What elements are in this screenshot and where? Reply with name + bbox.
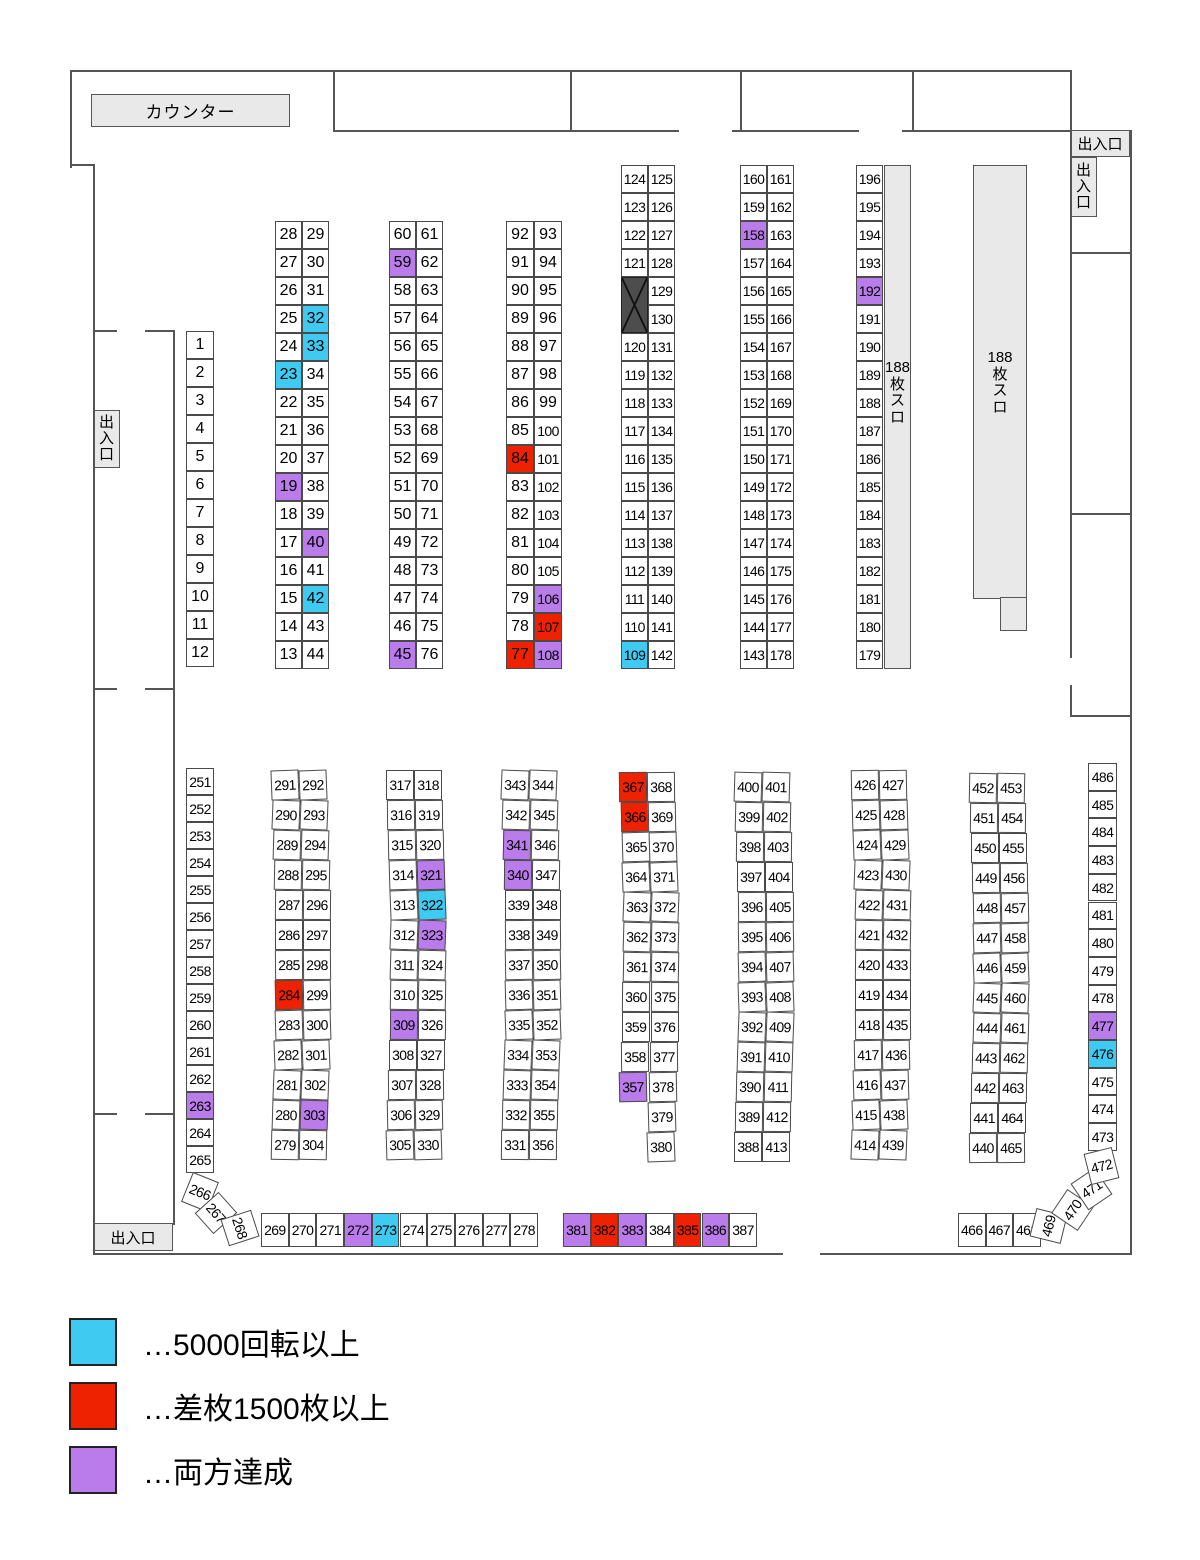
seat-154: 154 xyxy=(740,333,767,361)
seat-57: 57 xyxy=(389,305,416,333)
seat-166: 166 xyxy=(767,305,794,333)
seat-465: 465 xyxy=(997,1133,1025,1163)
seat-61: 61 xyxy=(416,221,443,249)
seat-311: 311 xyxy=(390,950,419,981)
seat-100: 100 xyxy=(534,417,562,445)
seat-404: 404 xyxy=(765,862,793,892)
seat-171: 171 xyxy=(767,445,794,473)
seat-349: 349 xyxy=(533,920,561,950)
seat-415: 415 xyxy=(852,1099,881,1130)
seat-464: 464 xyxy=(998,1103,1026,1133)
seat-6: 6 xyxy=(186,471,214,499)
seat-129: 129 xyxy=(648,277,675,305)
seat-458: 458 xyxy=(1000,923,1029,954)
seat-257: 257 xyxy=(186,930,214,957)
seat-273: 273 xyxy=(372,1213,400,1247)
seat-174: 174 xyxy=(767,529,794,557)
seat-285: 285 xyxy=(275,950,303,980)
seat-36: 36 xyxy=(302,417,329,445)
seat-95: 95 xyxy=(534,277,562,305)
seat-32: 32 xyxy=(302,305,329,333)
seat-162: 162 xyxy=(767,193,794,221)
seat-375: 375 xyxy=(651,982,679,1012)
seat-324: 324 xyxy=(418,950,447,981)
seat-319: 319 xyxy=(415,800,443,830)
seat-47: 47 xyxy=(389,585,416,613)
seat-80: 80 xyxy=(506,557,534,585)
seat-269: 269 xyxy=(261,1213,289,1247)
seat-402: 402 xyxy=(763,802,792,833)
seat-328: 328 xyxy=(416,1070,444,1100)
seat-42: 42 xyxy=(302,585,329,613)
seat-428: 428 xyxy=(880,800,909,831)
seat-94: 94 xyxy=(534,249,562,277)
seat-317: 317 xyxy=(386,770,414,800)
wall-segment xyxy=(70,70,72,168)
seat-53: 53 xyxy=(389,417,416,445)
seat-376: 376 xyxy=(651,1012,679,1042)
seat-424: 424 xyxy=(853,829,882,860)
seat-33: 33 xyxy=(302,333,329,361)
seat-354: 354 xyxy=(531,1070,560,1101)
seat-187: 187 xyxy=(856,417,883,445)
seat-120: 120 xyxy=(621,333,648,361)
seat-49: 49 xyxy=(389,529,416,557)
legend-label-red: …差枚1500枚以上 xyxy=(143,1384,390,1428)
seat-460: 460 xyxy=(1000,982,1029,1013)
seat-263: 263 xyxy=(186,1092,214,1119)
seat-86: 86 xyxy=(506,389,534,417)
seat-388: 388 xyxy=(734,1132,762,1162)
seat-175: 175 xyxy=(767,557,794,585)
slot-strip-inner-label: 188枚スロ xyxy=(884,360,911,426)
seat-190: 190 xyxy=(856,333,883,361)
seat-189: 189 xyxy=(856,361,883,389)
seat-420: 420 xyxy=(855,950,883,980)
seat-360: 360 xyxy=(622,982,650,1012)
seat-362: 362 xyxy=(623,922,652,953)
floor-map: カウンター 出入口 出入口 出入口 出入口 188枚スロ 188枚スロ …500… xyxy=(0,0,1200,1560)
seat-195: 195 xyxy=(856,193,883,221)
seat-98: 98 xyxy=(534,361,562,389)
seat-398: 398 xyxy=(736,832,764,862)
wall-segment xyxy=(570,70,572,132)
seat-31: 31 xyxy=(302,277,329,305)
seat-115: 115 xyxy=(621,473,648,501)
seat-485: 485 xyxy=(1088,791,1117,819)
seat-184: 184 xyxy=(856,501,883,529)
seat-481: 481 xyxy=(1088,902,1117,930)
seat-71: 71 xyxy=(416,501,443,529)
seat-256: 256 xyxy=(186,903,214,930)
wall-segment xyxy=(1070,252,1132,254)
seat-448: 448 xyxy=(972,893,1001,924)
seat-259: 259 xyxy=(186,984,214,1011)
seat-30: 30 xyxy=(302,249,329,277)
seat-188: 188 xyxy=(856,389,883,417)
seat-450: 450 xyxy=(971,833,999,863)
seat-85: 85 xyxy=(506,417,534,445)
counter-box: カウンター xyxy=(91,94,290,127)
seat-372: 372 xyxy=(650,891,679,922)
seat-73: 73 xyxy=(416,557,443,585)
seat-28: 28 xyxy=(275,221,302,249)
seat-144: 144 xyxy=(740,613,767,641)
seat-4: 4 xyxy=(186,415,214,443)
seat-387: 387 xyxy=(729,1213,757,1247)
seat-374: 374 xyxy=(651,952,680,983)
seat-286: 286 xyxy=(275,920,303,950)
seat-138: 138 xyxy=(648,529,675,557)
seat-392: 392 xyxy=(737,1011,766,1042)
seat-418: 418 xyxy=(854,1010,882,1040)
seat-312: 312 xyxy=(389,919,418,950)
seat-279: 279 xyxy=(271,1130,300,1161)
seat-5: 5 xyxy=(186,443,214,471)
seat-128: 128 xyxy=(648,249,675,277)
seat-24: 24 xyxy=(275,333,302,361)
wall-segment xyxy=(912,70,914,132)
seat-292: 292 xyxy=(299,769,328,800)
seat-11: 11 xyxy=(186,611,214,639)
seat-484: 484 xyxy=(1088,818,1117,846)
seat-69: 69 xyxy=(416,445,443,473)
seat-92: 92 xyxy=(506,221,534,249)
seat-394: 394 xyxy=(738,952,767,983)
seat-135: 135 xyxy=(648,445,675,473)
seat-102: 102 xyxy=(534,473,562,501)
seat-1: 1 xyxy=(186,331,214,359)
seat-82: 82 xyxy=(506,501,534,529)
legend-item-purple: …両方達成 xyxy=(69,1446,293,1494)
seat-91: 91 xyxy=(506,249,534,277)
seat-441: 441 xyxy=(970,1103,998,1133)
wall-segment xyxy=(1070,513,1132,515)
seat-172: 172 xyxy=(767,473,794,501)
seat-251: 251 xyxy=(186,768,214,795)
seat-155: 155 xyxy=(740,305,767,333)
seat-116: 116 xyxy=(621,445,648,473)
seat-431: 431 xyxy=(882,890,911,921)
seat-291: 291 xyxy=(271,769,300,800)
seat-476: 476 xyxy=(1088,1040,1117,1068)
slot-strip-right-label: 188枚スロ xyxy=(973,350,1027,416)
seat-305: 305 xyxy=(386,1130,415,1161)
seat-50: 50 xyxy=(389,501,416,529)
seat-160: 160 xyxy=(740,165,767,193)
seat-290: 290 xyxy=(272,799,301,830)
wall-segment xyxy=(820,1253,1132,1255)
seat-132: 132 xyxy=(648,361,675,389)
seat-35: 35 xyxy=(302,389,329,417)
seat-439: 439 xyxy=(879,1129,908,1160)
seat-278: 278 xyxy=(510,1213,538,1247)
seat-342: 342 xyxy=(502,800,531,831)
seat-173: 173 xyxy=(767,501,794,529)
seat-434: 434 xyxy=(883,980,911,1010)
seat-152: 152 xyxy=(740,389,767,417)
seat-475: 475 xyxy=(1088,1068,1117,1096)
seat-83: 83 xyxy=(506,473,534,501)
seat-433: 433 xyxy=(883,950,911,980)
seat-417: 417 xyxy=(854,1040,883,1071)
seat-252: 252 xyxy=(186,795,214,822)
wall-segment xyxy=(732,130,859,132)
seat-105: 105 xyxy=(534,557,562,585)
seat-147: 147 xyxy=(740,529,767,557)
seat-186: 186 xyxy=(856,445,883,473)
seat-103: 103 xyxy=(534,501,562,529)
entrance-right: 出入口 xyxy=(1070,157,1097,217)
seat-9: 9 xyxy=(186,555,214,583)
seat-358: 358 xyxy=(620,1042,648,1072)
seat-395: 395 xyxy=(738,922,767,953)
seat-479: 479 xyxy=(1088,957,1117,985)
seat-371: 371 xyxy=(649,861,678,892)
seat-142: 142 xyxy=(648,641,675,669)
seat-478: 478 xyxy=(1088,985,1117,1013)
seat-10: 10 xyxy=(186,583,214,611)
seat-382: 382 xyxy=(591,1213,619,1247)
seat-134: 134 xyxy=(648,417,675,445)
seat-66: 66 xyxy=(416,361,443,389)
seat-332: 332 xyxy=(502,1100,531,1131)
seat-193: 193 xyxy=(856,249,883,277)
seat-17: 17 xyxy=(275,529,302,557)
seat-271: 271 xyxy=(316,1213,344,1247)
wall-segment xyxy=(145,688,175,690)
slot-strip-right-foot xyxy=(1000,597,1027,631)
seat-411: 411 xyxy=(764,1072,793,1103)
seat-13: 13 xyxy=(275,641,302,669)
wall-segment xyxy=(902,130,1070,132)
seat-3: 3 xyxy=(186,387,214,415)
seat-405: 405 xyxy=(765,892,793,922)
seat-287: 287 xyxy=(274,890,302,920)
seat-409: 409 xyxy=(765,1011,794,1042)
seat-367: 367 xyxy=(619,772,647,802)
seat-23: 23 xyxy=(275,361,302,389)
seat-406: 406 xyxy=(766,922,795,953)
seat-307: 307 xyxy=(388,1070,416,1100)
seat-401: 401 xyxy=(762,772,791,803)
seat-435: 435 xyxy=(882,1010,910,1040)
seat-121: 121 xyxy=(621,249,648,277)
seat-93: 93 xyxy=(534,221,562,249)
seat-357: 357 xyxy=(619,1072,648,1103)
seat-486: 486 xyxy=(1088,763,1117,791)
legend-swatch-red xyxy=(69,1382,117,1430)
seat-15: 15 xyxy=(275,585,302,613)
seat-97: 97 xyxy=(534,333,562,361)
seat-52: 52 xyxy=(389,445,416,473)
seat-326: 326 xyxy=(417,1010,445,1040)
seat-380: 380 xyxy=(647,1131,676,1162)
seat-143: 143 xyxy=(740,641,767,669)
seat-310: 310 xyxy=(390,980,419,1011)
seat-270: 270 xyxy=(289,1213,317,1247)
seat-320: 320 xyxy=(416,830,445,861)
seat-274: 274 xyxy=(400,1213,428,1247)
seat-407: 407 xyxy=(766,952,795,983)
seat-56: 56 xyxy=(389,333,416,361)
entrance-right-label: 出入口 xyxy=(1076,163,1091,210)
seat-261: 261 xyxy=(186,1038,214,1065)
seat-451: 451 xyxy=(970,803,998,833)
seat-140: 140 xyxy=(648,585,675,613)
seat-378: 378 xyxy=(649,1072,678,1103)
seat-253: 253 xyxy=(186,822,214,849)
seat-125: 125 xyxy=(648,165,675,193)
seat-281: 281 xyxy=(273,1069,302,1100)
seat-75: 75 xyxy=(416,613,443,641)
seat-37: 37 xyxy=(302,445,329,473)
seat-177: 177 xyxy=(767,613,794,641)
seat-459: 459 xyxy=(1000,952,1029,983)
seat-299: 299 xyxy=(303,980,332,1011)
seat-297: 297 xyxy=(303,920,331,950)
seat-316: 316 xyxy=(387,800,415,830)
seat-335: 335 xyxy=(504,1009,533,1040)
seat-157: 157 xyxy=(740,249,767,277)
seat-452: 452 xyxy=(969,773,998,804)
seat-390: 390 xyxy=(736,1072,765,1103)
seat-466: 466 xyxy=(958,1213,986,1247)
seat-74: 74 xyxy=(416,585,443,613)
seat-330: 330 xyxy=(414,1130,443,1161)
seat-2: 2 xyxy=(186,359,214,387)
seat-46: 46 xyxy=(389,613,416,641)
seat-412: 412 xyxy=(763,1102,791,1132)
seat-18: 18 xyxy=(275,501,302,529)
seat-192: 192 xyxy=(856,277,883,305)
seat-449: 449 xyxy=(972,863,1000,893)
seat-462: 462 xyxy=(1000,1043,1029,1074)
seat-196: 196 xyxy=(856,165,883,193)
seat-403: 403 xyxy=(764,832,792,862)
seat-421: 421 xyxy=(855,920,884,951)
seat-344: 344 xyxy=(529,769,558,800)
seat-293: 293 xyxy=(300,799,329,830)
seat-126: 126 xyxy=(648,193,675,221)
seat-106: 106 xyxy=(534,585,562,613)
seat-99: 99 xyxy=(534,389,562,417)
seat-59: 59 xyxy=(389,249,416,277)
seat-294: 294 xyxy=(301,830,330,861)
seat-309: 309 xyxy=(389,1010,417,1040)
entrance-top-right: 出入口 xyxy=(1070,130,1130,157)
seat-391: 391 xyxy=(736,1042,765,1073)
seat-29: 29 xyxy=(302,221,329,249)
seat-260: 260 xyxy=(186,1011,214,1038)
seat-65: 65 xyxy=(416,333,443,361)
seat-60: 60 xyxy=(389,221,416,249)
seat-370: 370 xyxy=(649,832,678,863)
seat-437: 437 xyxy=(881,1070,910,1101)
wall-segment xyxy=(1070,70,1072,658)
seat-455: 455 xyxy=(999,833,1027,863)
seat-88: 88 xyxy=(506,333,534,361)
seat-275: 275 xyxy=(427,1213,455,1247)
seat-381: 381 xyxy=(563,1213,591,1247)
legend-item-red: …差枚1500枚以上 xyxy=(69,1382,390,1430)
seat-276: 276 xyxy=(455,1213,483,1247)
seat-283: 283 xyxy=(274,1010,303,1041)
seat-123: 123 xyxy=(621,193,648,221)
seat-467: 467 xyxy=(986,1213,1014,1247)
seat-322: 322 xyxy=(417,889,446,920)
seat-44: 44 xyxy=(302,641,329,669)
wall-segment xyxy=(93,1113,117,1115)
seat-20: 20 xyxy=(275,445,302,473)
seat-373: 373 xyxy=(650,922,679,953)
seat-353: 353 xyxy=(531,1039,560,1070)
seat-288: 288 xyxy=(274,860,303,891)
seat-79: 79 xyxy=(506,585,534,613)
seat-336: 336 xyxy=(504,980,533,1011)
entrance-top-right-label: 出入口 xyxy=(1077,133,1122,154)
seat-298: 298 xyxy=(303,950,331,980)
seat-472: 472 xyxy=(1084,1147,1120,1185)
seat-131: 131 xyxy=(648,333,675,361)
seat-280: 280 xyxy=(272,1100,301,1131)
seat-313: 313 xyxy=(389,889,418,920)
wall-segment xyxy=(1130,130,1132,1255)
seat-70: 70 xyxy=(416,473,443,501)
seat-337: 337 xyxy=(505,950,534,981)
entrance-bottom-left-label: 出入口 xyxy=(110,1227,155,1248)
seat-315: 315 xyxy=(388,830,417,861)
seat-130: 130 xyxy=(648,305,675,333)
legend-swatch-purple xyxy=(69,1446,117,1494)
seat-67: 67 xyxy=(416,389,443,417)
seat-410: 410 xyxy=(764,1042,793,1073)
blocked-seat-x xyxy=(621,277,648,333)
seat-339: 339 xyxy=(505,890,533,920)
seat-318: 318 xyxy=(414,770,442,800)
seat-62: 62 xyxy=(416,249,443,277)
seat-124: 124 xyxy=(621,165,648,193)
seat-306: 306 xyxy=(387,1100,416,1131)
seat-444: 444 xyxy=(972,1013,1001,1044)
seat-178: 178 xyxy=(767,641,794,669)
seat-456: 456 xyxy=(1000,863,1028,893)
seat-101: 101 xyxy=(534,445,562,473)
seat-141: 141 xyxy=(648,613,675,641)
seat-108: 108 xyxy=(534,641,562,669)
wall-segment xyxy=(173,330,175,1225)
seat-107: 107 xyxy=(534,613,562,641)
seat-148: 148 xyxy=(740,501,767,529)
seat-304: 304 xyxy=(299,1130,328,1161)
seat-51: 51 xyxy=(389,473,416,501)
seat-400: 400 xyxy=(734,772,763,803)
seat-334: 334 xyxy=(503,1039,532,1070)
seat-161: 161 xyxy=(767,165,794,193)
seat-119: 119 xyxy=(621,361,648,389)
seat-7: 7 xyxy=(186,499,214,527)
seat-272: 272 xyxy=(344,1213,372,1247)
seat-262: 262 xyxy=(186,1065,214,1092)
seat-457: 457 xyxy=(1000,893,1029,924)
seat-12: 12 xyxy=(186,639,214,667)
seat-355: 355 xyxy=(530,1100,559,1131)
seat-422: 422 xyxy=(854,890,883,921)
seat-254: 254 xyxy=(186,849,214,876)
seat-38: 38 xyxy=(302,473,329,501)
seat-331: 331 xyxy=(501,1130,529,1160)
seat-350: 350 xyxy=(533,950,562,981)
